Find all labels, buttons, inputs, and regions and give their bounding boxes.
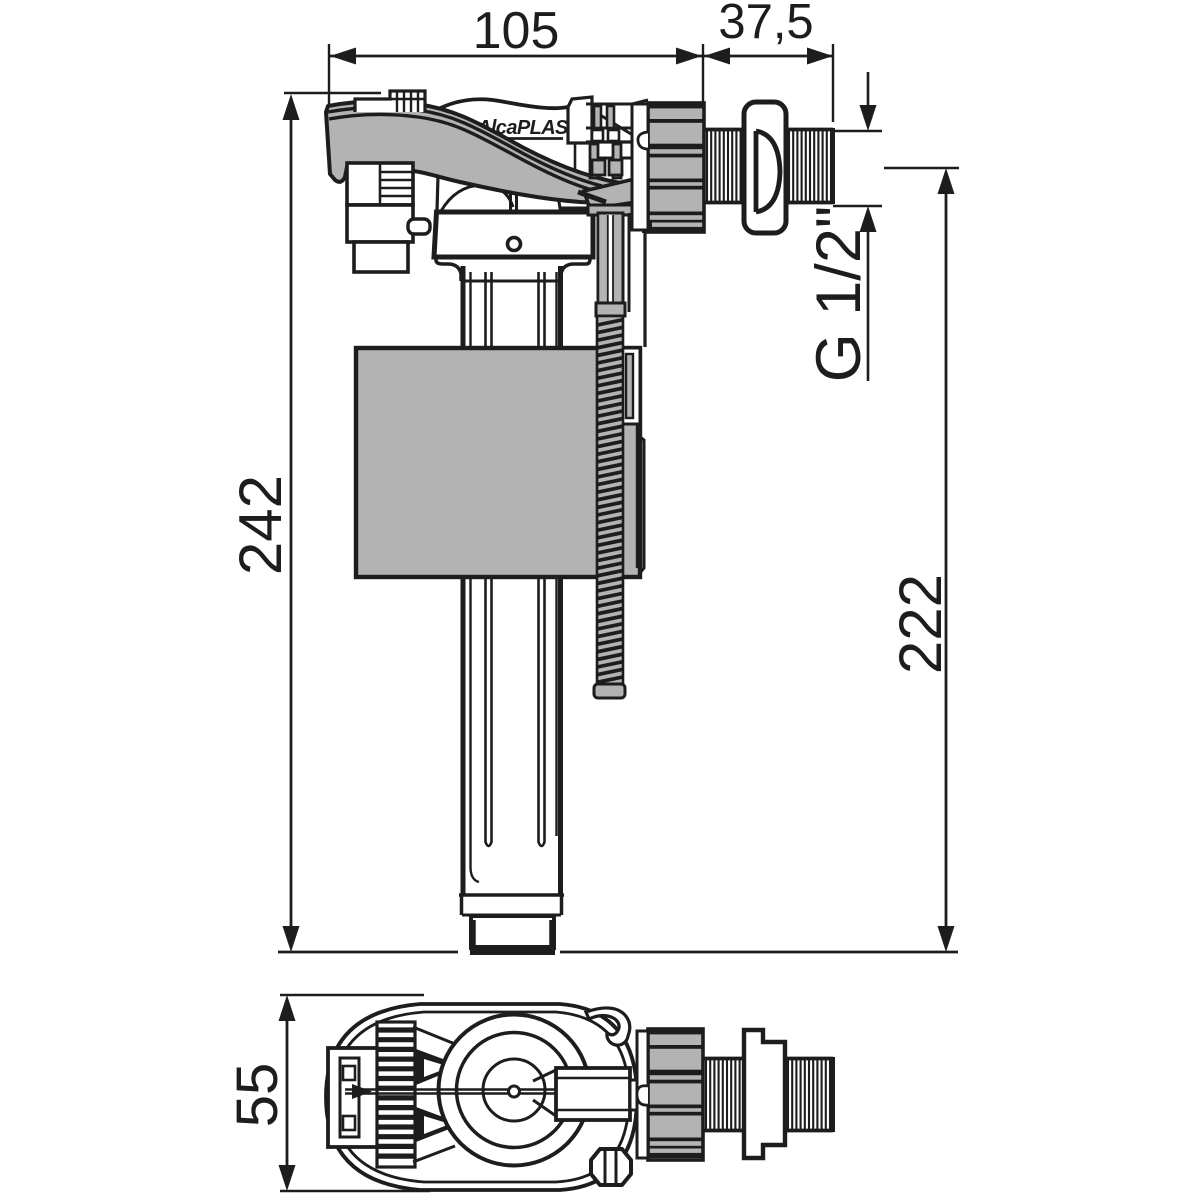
svg-text:37,5: 37,5 [718, 0, 813, 49]
svg-text:55: 55 [225, 1063, 290, 1128]
svg-text:105: 105 [473, 2, 560, 60]
svg-text:222: 222 [887, 574, 954, 674]
svg-text:242: 242 [227, 475, 294, 575]
svg-text:G 1/2": G 1/2" [804, 206, 874, 382]
